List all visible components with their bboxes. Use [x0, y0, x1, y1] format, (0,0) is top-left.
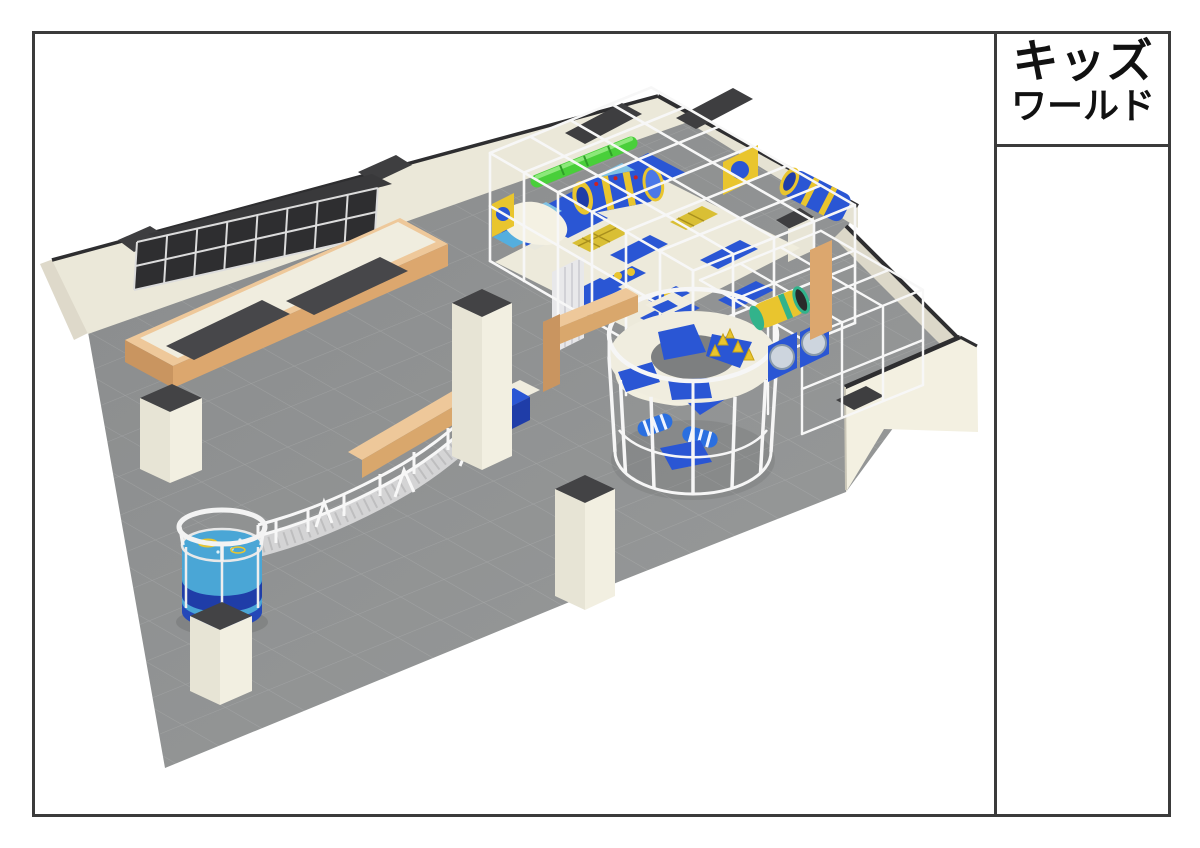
column — [555, 475, 615, 610]
column — [452, 289, 512, 470]
title-block: キッズ ワールド — [997, 38, 1169, 128]
title-line2: ワールド — [997, 86, 1169, 127]
column — [190, 602, 252, 705]
title-line1: キッズ — [997, 38, 1169, 86]
title-block-divider — [994, 144, 1171, 147]
title-column-divider — [994, 31, 997, 817]
drawing-sheet: キッズ ワールド — [0, 0, 1200, 848]
column — [140, 384, 202, 483]
